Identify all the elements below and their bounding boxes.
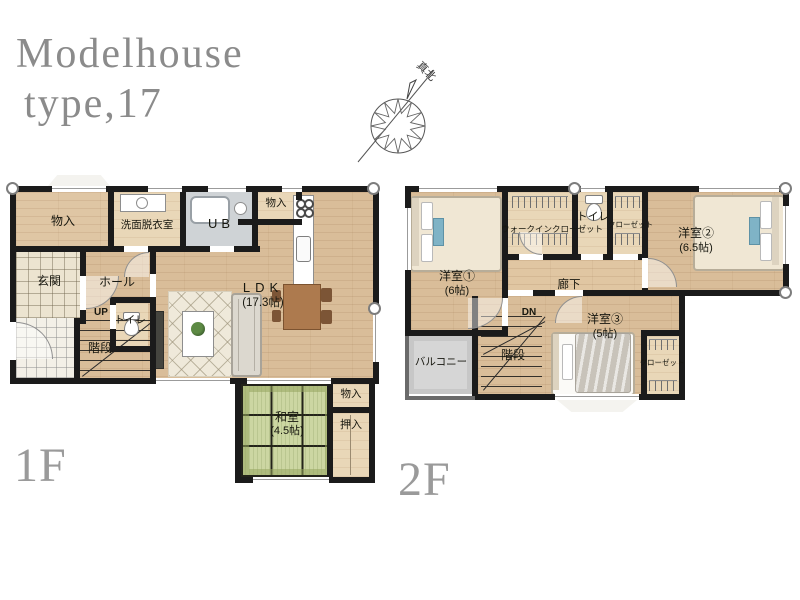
stove-burner <box>304 208 314 218</box>
post-marker <box>6 182 19 195</box>
floor2-tag: 2F <box>398 452 451 507</box>
dining-chair <box>272 310 281 322</box>
balcony-rail <box>405 396 475 400</box>
room-label-stairs2: 階段 <box>483 348 543 364</box>
compass-rose-icon: 真北 <box>350 50 448 168</box>
closet-hanger-rod <box>649 339 677 350</box>
room-size-bedroom3: (5帖) <box>565 327 645 341</box>
wall <box>333 407 369 413</box>
bed-pillow <box>760 233 772 261</box>
bed-headboard <box>772 197 779 265</box>
wall <box>150 246 156 274</box>
window <box>405 208 411 270</box>
room-label-entrance: 玄関 <box>20 274 78 290</box>
wall <box>642 290 789 296</box>
door-opening <box>210 246 234 252</box>
label-dn: DN <box>513 306 545 319</box>
room-label-ldk: LDK <box>208 280 318 297</box>
room-label-bedroom2: 洋室② <box>655 226 737 242</box>
room-label-oshiire: 押入 <box>329 418 373 432</box>
room-label-toilet: トイレ <box>108 314 152 328</box>
window <box>282 186 302 192</box>
washbasin-bowl <box>136 197 148 209</box>
door-opening <box>581 254 603 260</box>
post-marker <box>368 302 381 315</box>
door-opening <box>613 254 638 260</box>
opening <box>150 274 156 297</box>
room-label-balcony: バルコニー <box>407 356 475 370</box>
table-plant <box>191 322 205 336</box>
floor-plan-page: { "title": {"line1": "Modelhouse", "line… <box>0 0 800 600</box>
room-label-unit-bath: UB <box>194 216 248 233</box>
room-label-closet-se: クローゼット <box>639 358 685 368</box>
post-marker <box>779 182 792 195</box>
bath-stool <box>234 202 247 215</box>
post-marker <box>367 182 380 195</box>
room-label-storage-nw: 物入 <box>32 214 94 230</box>
bed-throw <box>749 217 760 245</box>
wall <box>110 297 156 303</box>
door-opening <box>502 298 508 326</box>
window <box>253 477 329 483</box>
room-size-ldk: (17.3帖) <box>208 296 318 311</box>
bed-blanket <box>575 333 631 393</box>
window <box>699 186 779 192</box>
closet-hanger-rod <box>615 196 640 208</box>
window <box>419 186 497 192</box>
sliding-door <box>247 378 331 384</box>
page-title: Modelhousetype,17 <box>16 30 244 129</box>
room-label-hall: ホール <box>86 275 148 291</box>
bed-pillow <box>421 202 433 230</box>
window <box>148 186 182 192</box>
window <box>581 186 605 192</box>
window <box>208 186 246 192</box>
window <box>555 394 639 400</box>
room-size-bedroom2: (6.5帖) <box>655 241 737 255</box>
wic-hanger-rod <box>512 196 568 208</box>
window <box>52 186 106 192</box>
room-label-stairs: 階段 <box>70 341 130 357</box>
wall <box>679 290 685 400</box>
room-label-storage-top: 物入 <box>248 197 304 211</box>
bed-pillow <box>562 344 573 380</box>
post-marker <box>568 182 581 195</box>
true-north-label: 真北 <box>414 58 439 83</box>
bay-window <box>557 400 637 412</box>
window <box>156 378 230 384</box>
title-line1: Modelhouse <box>16 31 244 77</box>
wall <box>405 330 508 336</box>
room-label-bedroom1: 洋室① <box>411 269 503 285</box>
bed-pillow <box>760 201 772 229</box>
closet-hanger-rod <box>649 380 677 391</box>
post-marker <box>779 286 792 299</box>
room-label-closet-top: クローゼット <box>608 220 652 230</box>
dining-chair <box>321 310 332 324</box>
wall <box>150 297 156 384</box>
window <box>783 206 789 264</box>
door-opening <box>124 246 148 252</box>
room-label-storage-se: 物入 <box>329 388 373 402</box>
floor2-plan: 洋室① (6帖) ウォークインクローゼット トイレ クローゼット 洋室② (6.… <box>405 186 789 406</box>
bed-pillow <box>421 234 433 262</box>
wall <box>641 330 685 336</box>
window <box>373 312 379 362</box>
room-size-bedroom1: (6帖) <box>411 284 503 298</box>
room-size-tatami: (4.5帖) <box>240 424 334 438</box>
floor1-tag: 1F <box>14 438 67 493</box>
kitchen-sink <box>296 236 311 262</box>
room-label-corridor: 廊下 <box>541 278 597 293</box>
bed-throw <box>433 218 444 246</box>
dining-chair <box>321 288 332 302</box>
bay-window <box>48 175 110 186</box>
bed-headboard <box>553 334 559 390</box>
title-line2: type,17 <box>24 81 163 127</box>
bed-headboard <box>412 198 419 266</box>
room-label-washroom: 洗面脱衣室 <box>110 219 184 233</box>
room-label-bedroom3: 洋室③ <box>565 312 645 328</box>
